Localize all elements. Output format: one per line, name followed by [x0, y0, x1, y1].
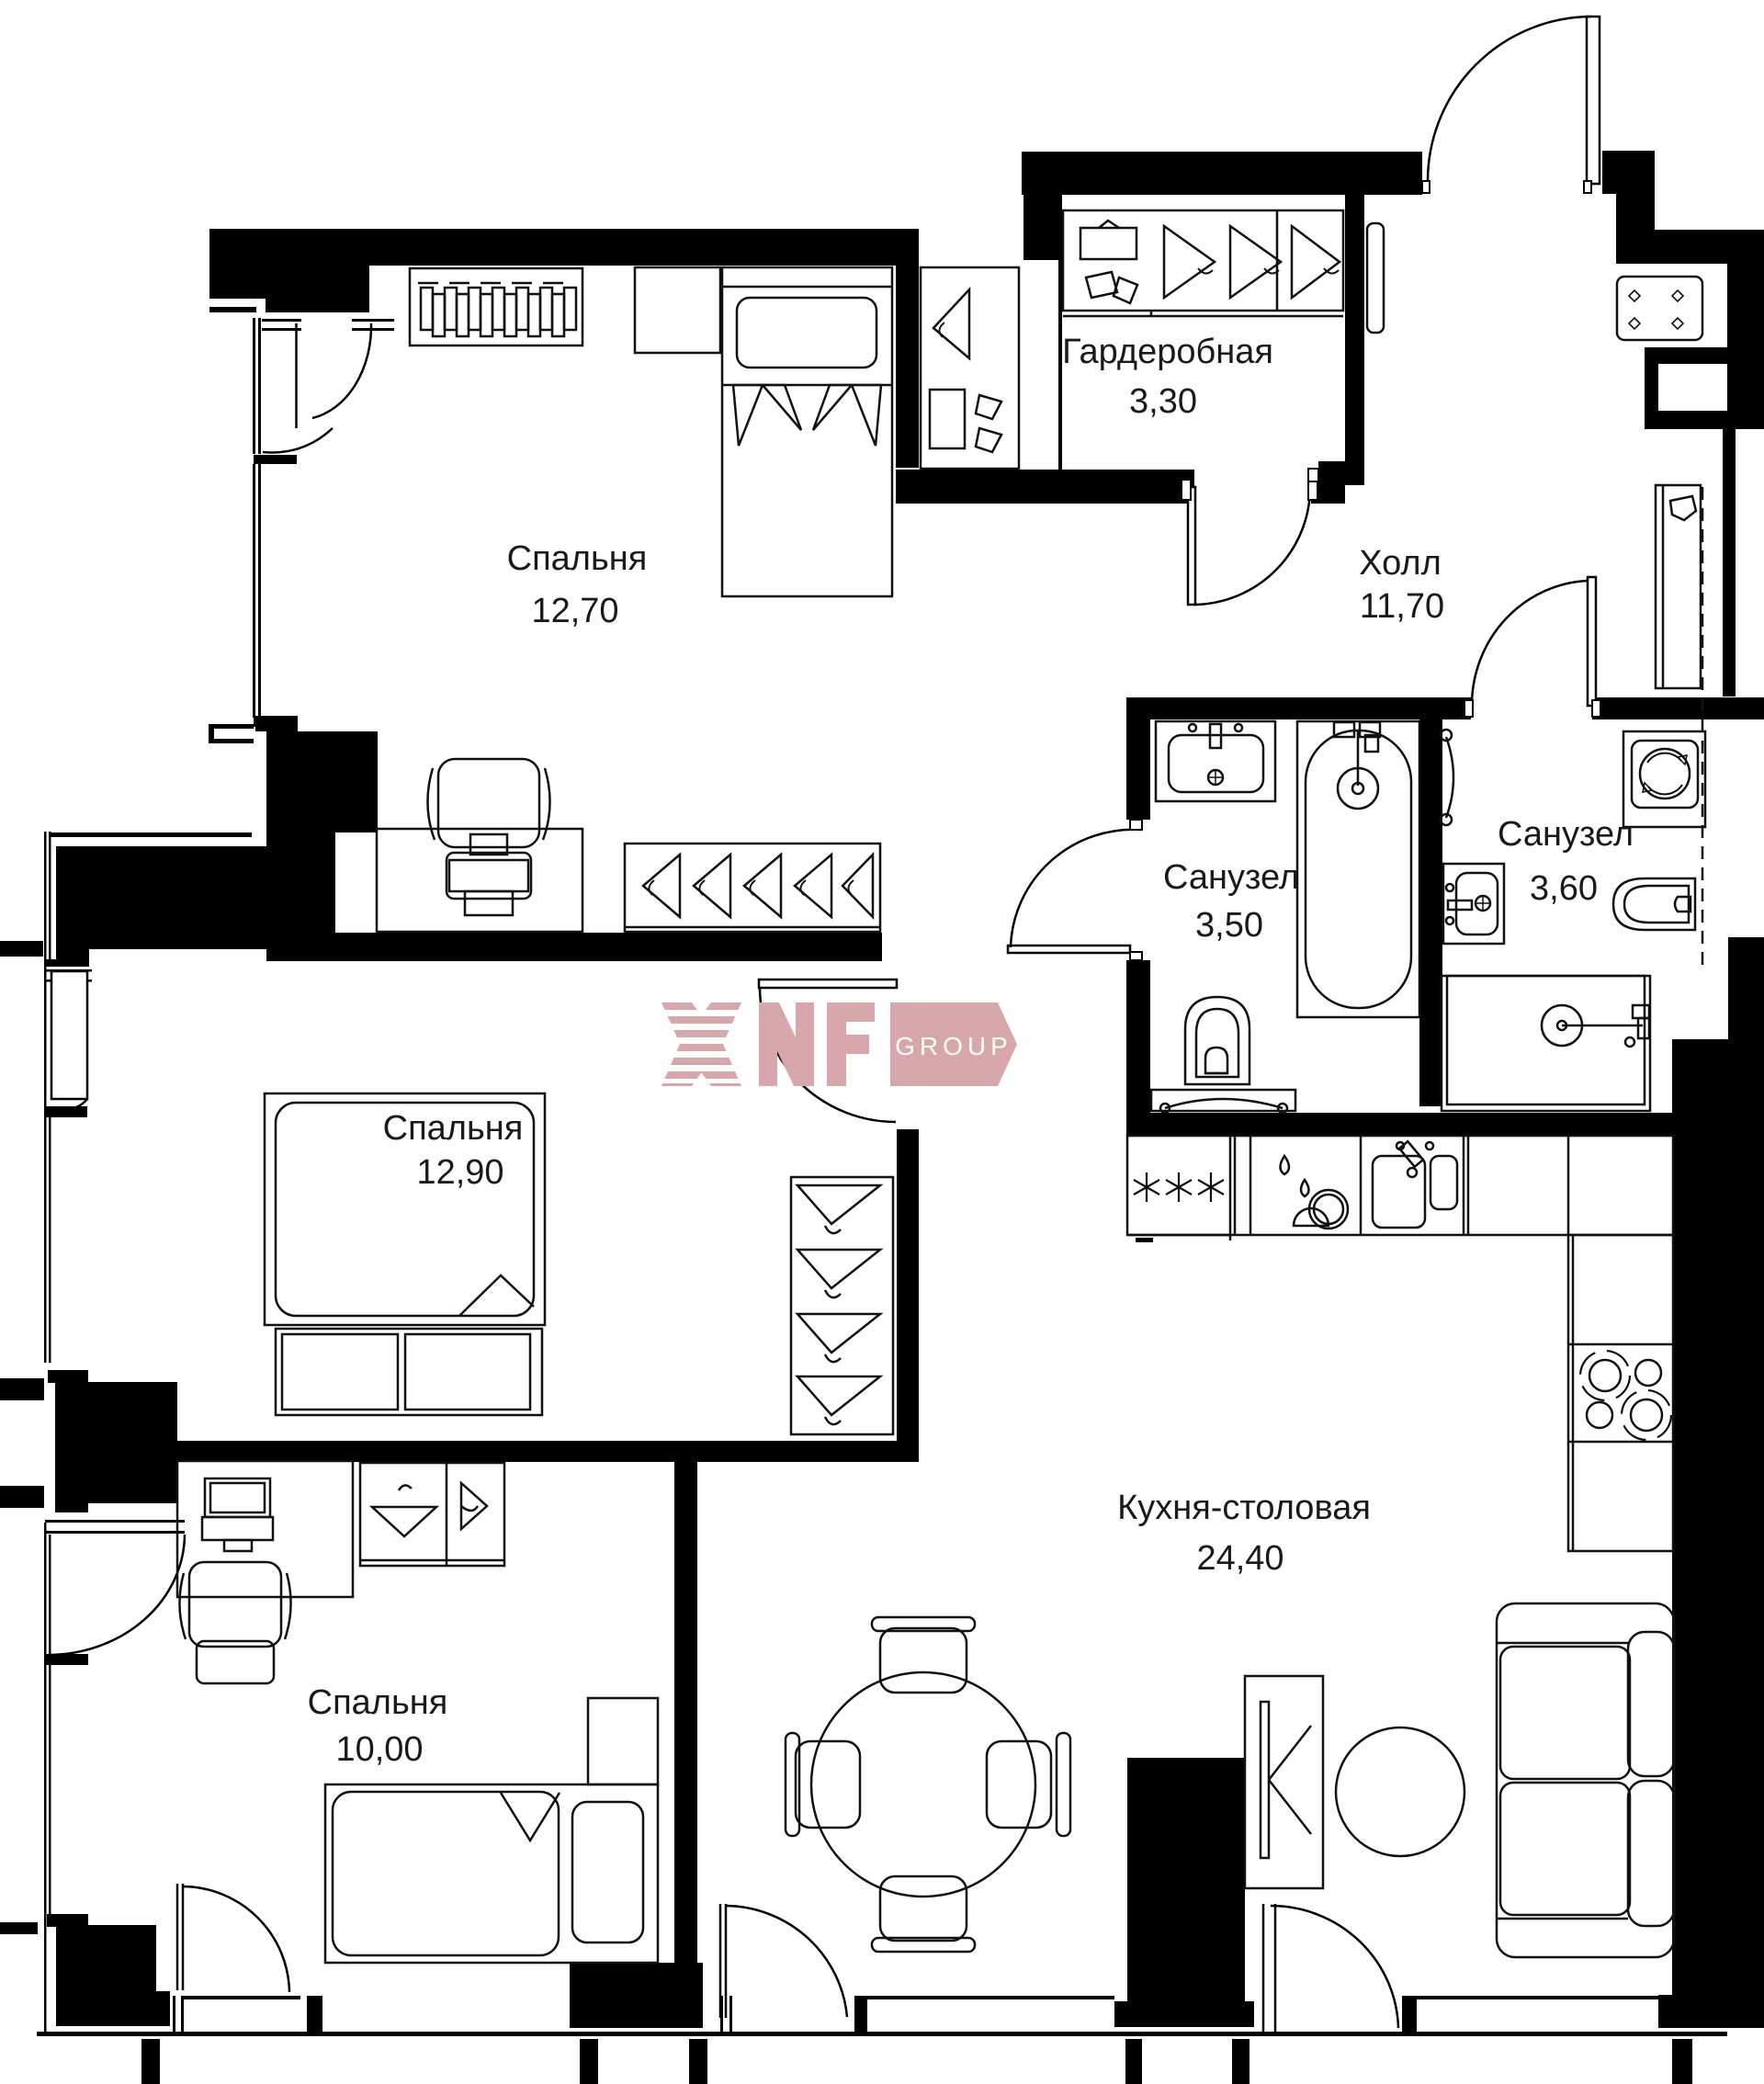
svg-text:Кухня-столовая: Кухня-столовая — [1117, 1489, 1371, 1527]
svg-text:Спальня: Спальня — [507, 539, 648, 578]
svg-text:Спальня: Спальня — [308, 1683, 448, 1722]
svg-text:11,70: 11,70 — [1360, 587, 1444, 626]
svg-text:Холл: Холл — [1359, 544, 1442, 583]
svg-text:Спальня: Спальня — [383, 1109, 524, 1148]
svg-text:10,00: 10,00 — [335, 1730, 423, 1769]
svg-text:12,70: 12,70 — [531, 592, 618, 630]
svg-text:24,40: 24,40 — [1196, 1539, 1283, 1578]
svg-text:Санузел: Санузел — [1163, 858, 1299, 897]
svg-text:3,30: 3,30 — [1129, 382, 1197, 421]
svg-text:GROUP: GROUP — [895, 1032, 1012, 1060]
svg-text:Гардеробная: Гардеробная — [1062, 333, 1273, 371]
svg-text:12,90: 12,90 — [416, 1153, 503, 1192]
svg-text:Санузел: Санузел — [1498, 815, 1634, 854]
svg-text:3,50: 3,50 — [1195, 906, 1263, 945]
svg-text:3,60: 3,60 — [1530, 869, 1598, 908]
